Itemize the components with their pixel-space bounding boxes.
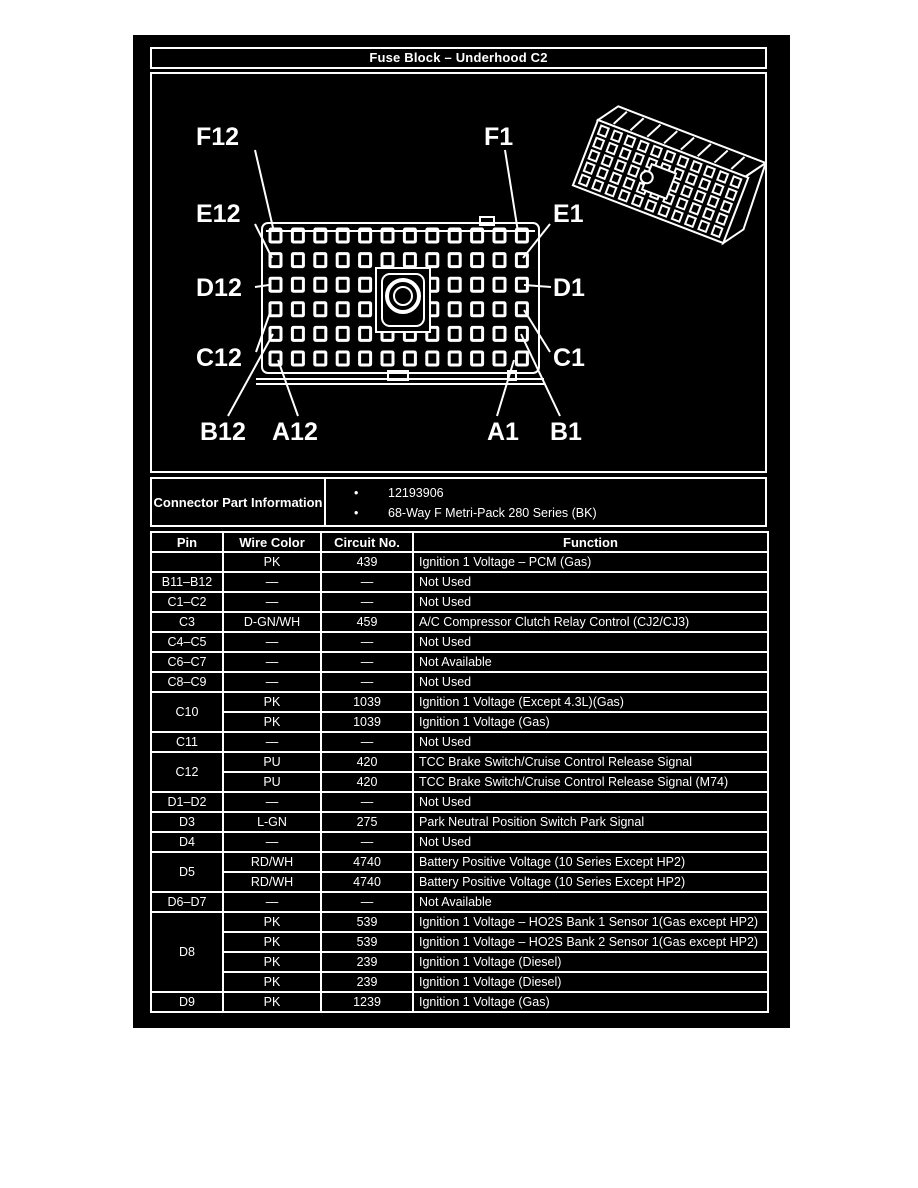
- table-row: D4——Not Used: [151, 832, 768, 852]
- wire-color-cell: L-GN: [223, 812, 321, 832]
- pin-cell: C4–C5: [151, 632, 223, 652]
- circuit-no-cell: 439: [321, 552, 413, 572]
- circuit-no-cell: 4740: [321, 872, 413, 892]
- table-row: D8PK539Ignition 1 Voltage – HO2S Bank 1 …: [151, 912, 768, 932]
- pin-cell: D9: [151, 992, 223, 1012]
- part-info-label: Connector Part Information: [151, 478, 325, 526]
- table-row: C10PK1039Ignition 1 Voltage (Except 4.3L…: [151, 692, 768, 712]
- table-row: RD/WH4740Battery Positive Voltage (10 Se…: [151, 872, 768, 892]
- pin-label-B12: B12: [200, 418, 246, 446]
- pin-cavity: [472, 278, 483, 291]
- pin-cell: D5: [151, 852, 223, 892]
- function-cell: Not Used: [413, 572, 768, 592]
- circuit-no-cell: 239: [321, 972, 413, 992]
- pin-cavity: [382, 254, 393, 267]
- pin-cell: C11: [151, 732, 223, 752]
- pin-cavity: [404, 352, 415, 365]
- pin-cell: C8–C9: [151, 672, 223, 692]
- pin-cavity: [494, 327, 505, 340]
- wire-color-cell: RD/WH: [223, 852, 321, 872]
- wire-color-cell: —: [223, 652, 321, 672]
- pin-label-F12: F12: [196, 123, 239, 151]
- function-cell: Not Used: [413, 592, 768, 612]
- wire-color-cell: PK: [223, 932, 321, 952]
- pin-cavity: [337, 303, 348, 316]
- pin-cavity: [449, 327, 460, 340]
- fuse-block-page-panel: Fuse Block – Underhood C2: [133, 35, 790, 1028]
- connector-diagram: F12F1E12E1D12D1C12C1B12A12A1B1: [150, 72, 767, 473]
- function-cell: Ignition 1 Voltage – PCM (Gas): [413, 552, 768, 572]
- column-header-circuit-no-: Circuit No.: [321, 532, 413, 552]
- circuit-no-cell: 539: [321, 932, 413, 952]
- wire-color-cell: —: [223, 832, 321, 852]
- connector-isometric-view: [573, 101, 765, 248]
- table-row: PK239Ignition 1 Voltage (Diesel): [151, 952, 768, 972]
- pin-cell: D1–D2: [151, 792, 223, 812]
- pin-cavity: [427, 352, 438, 365]
- table-row: D3L-GN275Park Neutral Position Switch Pa…: [151, 812, 768, 832]
- function-cell: A/C Compressor Clutch Relay Control (CJ2…: [413, 612, 768, 632]
- table-row: PK1039Ignition 1 Voltage (Gas): [151, 712, 768, 732]
- pin-label-D1: D1: [553, 274, 585, 302]
- part-info-item-text: 68-Way F Metri-Pack 280 Series (BK): [388, 506, 597, 520]
- pin-cavity: [337, 327, 348, 340]
- pin-cavity: [292, 352, 303, 365]
- pin-cavity: [472, 303, 483, 316]
- part-info-items: •12193906•68-Way F Metri-Pack 280 Series…: [325, 478, 766, 526]
- circuit-no-cell: —: [321, 572, 413, 592]
- pin-label-F1: F1: [484, 123, 513, 151]
- table-row: D9PK1239Ignition 1 Voltage (Gas): [151, 992, 768, 1012]
- table-row: C3D-GN/WH459A/C Compressor Clutch Relay …: [151, 612, 768, 632]
- function-cell: Ignition 1 Voltage (Except 4.3L)(Gas): [413, 692, 768, 712]
- table-row: D1–D2——Not Used: [151, 792, 768, 812]
- pin-cavity: [360, 278, 371, 291]
- circuit-no-cell: 4740: [321, 852, 413, 872]
- column-header-wire-color: Wire Color: [223, 532, 321, 552]
- circuit-no-cell: 1039: [321, 712, 413, 732]
- function-cell: Ignition 1 Voltage (Diesel): [413, 952, 768, 972]
- pin-cell: C1–C2: [151, 592, 223, 612]
- pin-cell: C10: [151, 692, 223, 732]
- pin-cell: C3: [151, 612, 223, 632]
- pin-cavity: [494, 352, 505, 365]
- center-bolt-tower: [376, 268, 430, 332]
- circuit-no-cell: 420: [321, 772, 413, 792]
- function-cell: Ignition 1 Voltage (Diesel): [413, 972, 768, 992]
- pin-cavity: [292, 254, 303, 267]
- pin-function-table: PinWire ColorCircuit No.Function PK439Ig…: [150, 531, 769, 1013]
- pin-cavity: [360, 352, 371, 365]
- pin-cavity: [270, 303, 281, 316]
- wire-color-cell: PK: [223, 952, 321, 972]
- wire-color-cell: PK: [223, 552, 321, 572]
- pin-cavity: [472, 254, 483, 267]
- circuit-no-cell: —: [321, 732, 413, 752]
- function-cell: Battery Positive Voltage (10 Series Exce…: [413, 852, 768, 872]
- pin-cell: B11–B12: [151, 572, 223, 592]
- pin-cavity: [315, 254, 326, 267]
- table-row: C11——Not Used: [151, 732, 768, 752]
- part-info-item: •68-Way F Metri-Pack 280 Series (BK): [354, 503, 765, 523]
- table-row: PK539Ignition 1 Voltage – HO2S Bank 2 Se…: [151, 932, 768, 952]
- pin-cell: [151, 552, 223, 572]
- pin-cavity: [337, 254, 348, 267]
- pin-cavity: [360, 303, 371, 316]
- function-cell: Not Used: [413, 792, 768, 812]
- circuit-no-cell: —: [321, 632, 413, 652]
- table-row: D5RD/WH4740Battery Positive Voltage (10 …: [151, 852, 768, 872]
- pin-cavity: [449, 352, 460, 365]
- circuit-no-cell: —: [321, 652, 413, 672]
- wire-color-cell: RD/WH: [223, 872, 321, 892]
- pin-cavity: [292, 327, 303, 340]
- table-row: C1–C2——Not Used: [151, 592, 768, 612]
- function-cell: Ignition 1 Voltage – HO2S Bank 1 Sensor …: [413, 912, 768, 932]
- circuit-no-cell: —: [321, 832, 413, 852]
- wire-color-cell: —: [223, 792, 321, 812]
- function-cell: Ignition 1 Voltage (Gas): [413, 712, 768, 732]
- table-row: D6–D7——Not Available: [151, 892, 768, 912]
- function-cell: Battery Positive Voltage (10 Series Exce…: [413, 872, 768, 892]
- table-row: PK239Ignition 1 Voltage (Diesel): [151, 972, 768, 992]
- circuit-no-cell: 539: [321, 912, 413, 932]
- column-header-pin: Pin: [151, 532, 223, 552]
- pin-cavity: [382, 352, 393, 365]
- pin-cavity: [449, 254, 460, 267]
- pin-cell: D3: [151, 812, 223, 832]
- pin-cavity: [449, 278, 460, 291]
- pin-label-A12: A12: [272, 418, 318, 446]
- part-info-item-text: 12193906: [388, 486, 444, 500]
- wire-color-cell: —: [223, 592, 321, 612]
- pin-cavity: [337, 278, 348, 291]
- pin-cavity: [315, 352, 326, 365]
- pin-cavity: [270, 278, 281, 291]
- column-header-function: Function: [413, 532, 768, 552]
- wire-color-cell: PK: [223, 712, 321, 732]
- pin-cavity: [292, 278, 303, 291]
- wire-color-cell: —: [223, 892, 321, 912]
- wire-color-cell: PK: [223, 972, 321, 992]
- pin-cavity: [494, 254, 505, 267]
- part-info-item: •12193906: [354, 483, 765, 503]
- page-title: Fuse Block – Underhood C2: [150, 47, 767, 69]
- function-cell: Not Available: [413, 892, 768, 912]
- table-row: C4–C5——Not Used: [151, 632, 768, 652]
- pin-cell: D6–D7: [151, 892, 223, 912]
- pin-cavity: [315, 303, 326, 316]
- function-cell: Not Used: [413, 672, 768, 692]
- pin-cavity: [472, 352, 483, 365]
- table-row: B11–B12——Not Used: [151, 572, 768, 592]
- pin-cavity: [315, 327, 326, 340]
- pin-cavity: [494, 278, 505, 291]
- pin-cavity: [427, 254, 438, 267]
- wire-color-cell: PK: [223, 992, 321, 1012]
- table-row: C8–C9——Not Used: [151, 672, 768, 692]
- function-cell: Not Used: [413, 832, 768, 852]
- pin-cavity: [472, 327, 483, 340]
- pin-cell: D4: [151, 832, 223, 852]
- function-cell: Ignition 1 Voltage (Gas): [413, 992, 768, 1012]
- pin-cell: C6–C7: [151, 652, 223, 672]
- pin-cavity: [404, 254, 415, 267]
- function-cell: TCC Brake Switch/Cruise Control Release …: [413, 752, 768, 772]
- table-header-row: PinWire ColorCircuit No.Function: [151, 532, 768, 552]
- pin-cavity: [360, 254, 371, 267]
- wire-color-cell: D-GN/WH: [223, 612, 321, 632]
- bullet-icon: •: [354, 483, 388, 503]
- circuit-no-cell: —: [321, 672, 413, 692]
- circuit-no-cell: 1239: [321, 992, 413, 1012]
- table-row: PU420TCC Brake Switch/Cruise Control Rel…: [151, 772, 768, 792]
- connector-part-info: Connector Part Information •12193906•68-…: [150, 477, 767, 527]
- circuit-no-cell: —: [321, 792, 413, 812]
- pin-cavity: [516, 352, 527, 365]
- wire-color-cell: PK: [223, 692, 321, 712]
- wire-color-cell: PK: [223, 912, 321, 932]
- pin-label-D12: D12: [196, 274, 242, 302]
- function-cell: Not Used: [413, 732, 768, 752]
- function-cell: Not Used: [413, 632, 768, 652]
- circuit-no-cell: 239: [321, 952, 413, 972]
- pin-label-B1: B1: [550, 418, 582, 446]
- function-cell: Not Available: [413, 652, 768, 672]
- pin-cavity: [337, 352, 348, 365]
- wire-color-cell: —: [223, 572, 321, 592]
- pin-cavity: [315, 278, 326, 291]
- table-row: PK439Ignition 1 Voltage – PCM (Gas): [151, 552, 768, 572]
- circuit-no-cell: —: [321, 592, 413, 612]
- circuit-no-cell: 275: [321, 812, 413, 832]
- wire-color-cell: PU: [223, 772, 321, 792]
- pin-cell: C12: [151, 752, 223, 792]
- pin-cavity: [449, 303, 460, 316]
- pin-cavity: [494, 303, 505, 316]
- pin-cell: D8: [151, 912, 223, 992]
- function-cell: Park Neutral Position Switch Park Signal: [413, 812, 768, 832]
- table-row: C6–C7——Not Available: [151, 652, 768, 672]
- connector-face-diagram: F12F1E12E1D12D1C12C1B12A12A1B1: [152, 74, 765, 471]
- pin-label-E12: E12: [196, 200, 240, 228]
- circuit-no-cell: 420: [321, 752, 413, 772]
- pin-cavity: [360, 327, 371, 340]
- wire-color-cell: —: [223, 632, 321, 652]
- circuit-no-cell: 1039: [321, 692, 413, 712]
- pin-label-A1: A1: [487, 418, 519, 446]
- function-cell: Ignition 1 Voltage – HO2S Bank 2 Sensor …: [413, 932, 768, 952]
- bullet-icon: •: [354, 503, 388, 523]
- circuit-no-cell: 459: [321, 612, 413, 632]
- wire-color-cell: —: [223, 672, 321, 692]
- pin-label-C1: C1: [553, 344, 585, 372]
- pin-label-E1: E1: [553, 200, 584, 228]
- circuit-no-cell: —: [321, 892, 413, 912]
- wire-color-cell: —: [223, 732, 321, 752]
- pin-label-C12: C12: [196, 344, 242, 372]
- function-cell: TCC Brake Switch/Cruise Control Release …: [413, 772, 768, 792]
- wire-color-cell: PU: [223, 752, 321, 772]
- pin-cavity: [292, 303, 303, 316]
- table-row: C12PU420TCC Brake Switch/Cruise Control …: [151, 752, 768, 772]
